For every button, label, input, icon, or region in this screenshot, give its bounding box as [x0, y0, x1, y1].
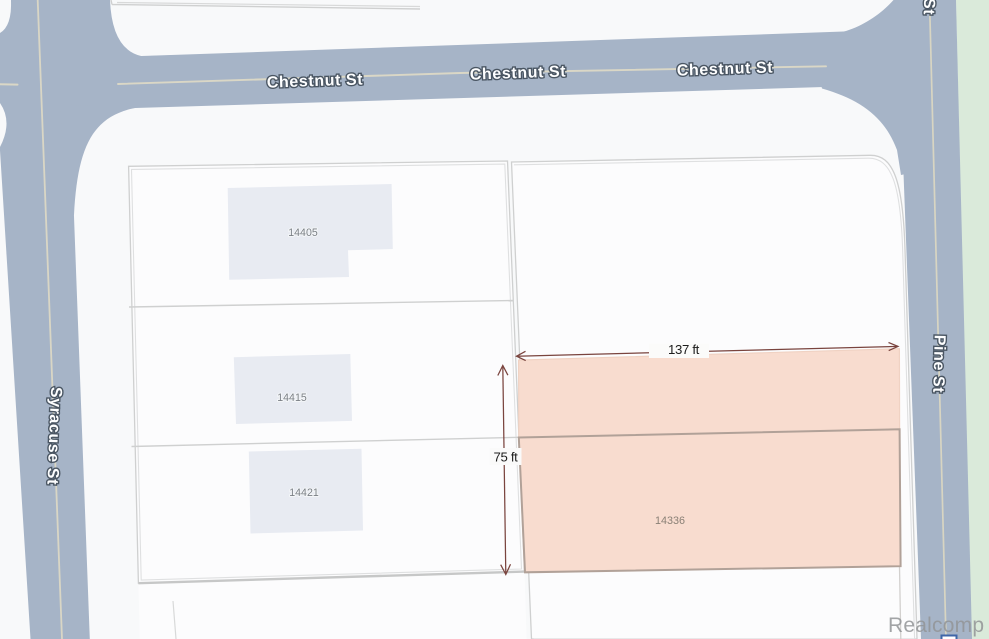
- svg-text:Realcomp: Realcomp: [888, 614, 984, 637]
- svg-text:137 ft: 137 ft: [668, 342, 700, 357]
- svg-text:14421: 14421: [289, 487, 319, 499]
- svg-text:Chestnut St: Chestnut St: [470, 63, 567, 83]
- svg-text:14405: 14405: [288, 227, 318, 239]
- svg-text:Pine St: Pine St: [920, 0, 939, 15]
- svg-text:Pine St: Pine St: [929, 335, 948, 394]
- svg-text:14415: 14415: [277, 392, 307, 404]
- svg-text:Chestnut St: Chestnut St: [267, 71, 364, 91]
- svg-text:Chestnut St: Chestnut St: [677, 59, 774, 79]
- svg-text:75 ft: 75 ft: [494, 450, 519, 465]
- svg-text:14336: 14336: [655, 515, 685, 527]
